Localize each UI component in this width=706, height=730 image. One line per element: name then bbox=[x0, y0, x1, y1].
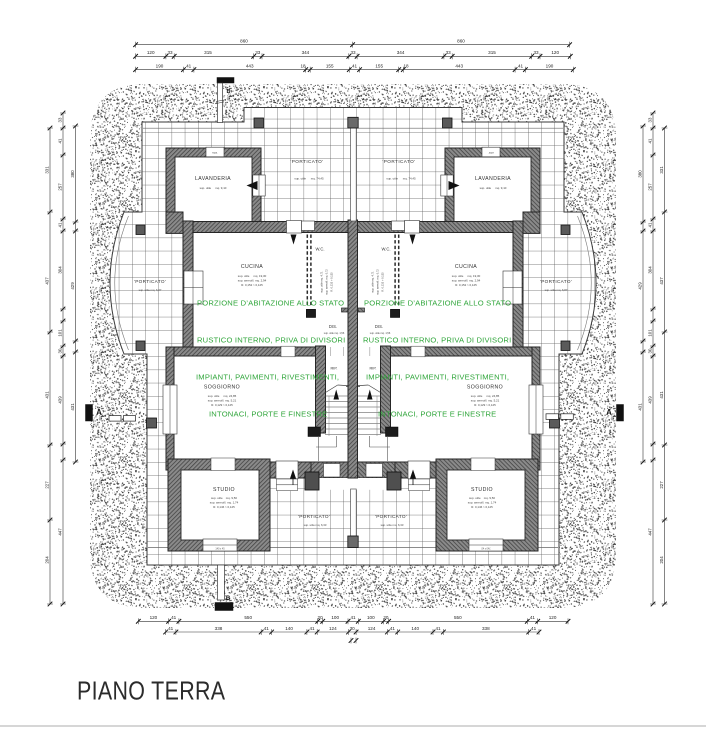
svg-text:sup. aereoill. mq. 0,72: sup. aereoill. mq. 0,72 bbox=[376, 269, 380, 295]
svg-text:41: 41 bbox=[647, 138, 652, 143]
svg-text:41: 41 bbox=[435, 626, 441, 631]
svg-text:R. 0,132 > 0,125: R. 0,132 > 0,125 bbox=[330, 272, 334, 292]
svg-text:204: 204 bbox=[659, 556, 664, 564]
svg-text:33: 33 bbox=[647, 117, 652, 122]
svg-text:190: 190 bbox=[156, 63, 164, 68]
svg-text:IMPIANTI, PAVIMENTI, RIVESTIME: IMPIANTI, PAVIMENTI, RIVESTIMENTI, bbox=[366, 373, 509, 382]
svg-text:SOGGIORNO: SOGGIORNO bbox=[467, 385, 503, 391]
svg-text:sup. utile mq. 19,30: sup. utile mq. 19,30 bbox=[238, 274, 267, 278]
svg-text:41: 41 bbox=[518, 63, 524, 68]
svg-text:‘PORTICATO’: ‘PORTICATO’ bbox=[298, 514, 330, 519]
svg-text:20: 20 bbox=[318, 615, 324, 620]
svg-text:257: 257 bbox=[647, 183, 652, 191]
svg-text:860: 860 bbox=[457, 39, 465, 44]
svg-text:STUDIO: STUDIO bbox=[213, 487, 235, 493]
svg-text:140: 140 bbox=[411, 626, 419, 631]
svg-text:PIANO TERRA: PIANO TERRA bbox=[77, 677, 225, 705]
svg-text:STUDIO: STUDIO bbox=[471, 487, 493, 493]
svg-text:41: 41 bbox=[171, 615, 177, 620]
svg-text:439: 439 bbox=[57, 396, 62, 404]
svg-text:33: 33 bbox=[350, 50, 356, 55]
svg-text:30: 30 bbox=[647, 348, 652, 353]
svg-text:sup. utile mq. 24,85: sup. utile mq. 24,85 bbox=[208, 394, 237, 398]
svg-text:41: 41 bbox=[168, 626, 174, 631]
svg-text:INTONACI, PORTE E FINESTRE: INTONACI, PORTE E FINESTRE bbox=[378, 410, 496, 419]
svg-text:sup. utile mq. 4,71: sup. utile mq. 4,71 bbox=[320, 271, 324, 293]
svg-text:A: A bbox=[606, 408, 612, 417]
svg-text:41: 41 bbox=[390, 626, 396, 631]
svg-text:41: 41 bbox=[647, 222, 652, 227]
svg-text:RIP.: RIP. bbox=[331, 367, 338, 371]
svg-text:41: 41 bbox=[530, 615, 536, 620]
svg-text:sca.: sca. bbox=[212, 151, 218, 155]
svg-text:431: 431 bbox=[637, 403, 642, 411]
svg-text:41: 41 bbox=[309, 626, 315, 631]
svg-text:155: 155 bbox=[326, 63, 334, 68]
svg-text:227: 227 bbox=[659, 481, 664, 489]
svg-text:443: 443 bbox=[246, 63, 254, 68]
svg-text:204: 204 bbox=[44, 556, 49, 564]
svg-text:41: 41 bbox=[57, 138, 62, 143]
svg-text:sup. aereoill. mq. 0,72: sup. aereoill. mq. 0,72 bbox=[325, 269, 329, 295]
svg-text:227: 227 bbox=[44, 481, 49, 489]
svg-text:20: 20 bbox=[383, 615, 389, 620]
svg-text:18: 18 bbox=[403, 63, 409, 68]
svg-text:R. 0,132 > 0,125: R. 0,132 > 0,125 bbox=[381, 272, 385, 292]
svg-text:‘PORTICATO’: ‘PORTICATO’ bbox=[382, 159, 415, 164]
svg-text:A: A bbox=[96, 408, 102, 417]
svg-text:LAVANDERIA: LAVANDERIA bbox=[475, 176, 511, 182]
svg-text:447: 447 bbox=[57, 528, 62, 536]
svg-text:CUCINA: CUCINA bbox=[241, 264, 263, 270]
svg-text:sup. utile mq. 19,30: sup. utile mq. 19,30 bbox=[452, 274, 481, 278]
svg-text:140 x 45: 140 x 45 bbox=[215, 548, 225, 551]
svg-text:‘PORTICATO’: ‘PORTICATO’ bbox=[134, 279, 166, 284]
svg-text:RUSTICO INTERNO, PRIVA DI DIVI: RUSTICO INTERNO, PRIVA DI DIVISORI bbox=[363, 336, 511, 345]
svg-text:sup. utile mq. 74,45: sup. utile mq. 74,45 bbox=[386, 177, 416, 181]
svg-text:155: 155 bbox=[375, 63, 383, 68]
svg-text:550: 550 bbox=[454, 615, 462, 620]
svg-text:120: 120 bbox=[150, 615, 158, 620]
svg-text:R. 0,129 > 0,125: R. 0,129 > 0,125 bbox=[474, 403, 496, 407]
svg-text:18: 18 bbox=[300, 63, 306, 68]
svg-text:431: 431 bbox=[70, 403, 75, 411]
svg-text:41: 41 bbox=[531, 626, 537, 631]
svg-text:sup. aereoill. mq. 1,74: sup. aereoill. mq. 1,74 bbox=[468, 501, 497, 505]
svg-text:120: 120 bbox=[147, 50, 155, 55]
svg-text:LAVANDERIA: LAVANDERIA bbox=[195, 176, 231, 182]
svg-text:338: 338 bbox=[215, 626, 223, 631]
svg-text:431: 431 bbox=[44, 391, 49, 399]
svg-text:W.C.: W.C. bbox=[315, 247, 324, 252]
svg-text:331: 331 bbox=[659, 166, 664, 174]
svg-text:140 x 45: 140 x 45 bbox=[481, 548, 491, 551]
svg-text:100: 100 bbox=[331, 615, 339, 620]
svg-text:B: B bbox=[227, 89, 231, 95]
svg-text:sup. utile mq. 24,85: sup. utile mq. 24,85 bbox=[471, 394, 500, 398]
svg-text:‘PORTICATO’: ‘PORTICATO’ bbox=[375, 514, 407, 519]
svg-text:R. 0,146 > 0,125: R. 0,146 > 0,125 bbox=[213, 505, 235, 509]
svg-text:41: 41 bbox=[186, 63, 192, 68]
svg-text:sup. utile mq. 9,10: sup. utile mq. 9,10 bbox=[200, 186, 227, 190]
svg-text:41: 41 bbox=[350, 615, 356, 620]
svg-text:380: 380 bbox=[70, 170, 75, 178]
svg-text:sup. utile mq. 9,50: sup. utile mq. 9,50 bbox=[469, 496, 495, 500]
svg-text:41: 41 bbox=[352, 63, 358, 68]
svg-text:sup. utile mq. 6,33: sup. utile mq. 6,33 bbox=[381, 523, 404, 527]
svg-text:344: 344 bbox=[302, 50, 310, 55]
svg-text:PORZIONE D’ABITAZIONE ALLO STA: PORZIONE D’ABITAZIONE ALLO STATO bbox=[364, 299, 511, 308]
svg-text:‘PORTICATO’: ‘PORTICATO’ bbox=[290, 159, 323, 164]
svg-text:344: 344 bbox=[397, 50, 405, 55]
svg-text:101: 101 bbox=[647, 329, 652, 337]
svg-text:DIS.: DIS. bbox=[375, 324, 383, 329]
svg-text:R. 0,152 > 0,125: R. 0,152 > 0,125 bbox=[455, 283, 477, 287]
svg-text:sup. aereoill. mq. 2,94: sup. aereoill. mq. 2,94 bbox=[452, 279, 481, 283]
svg-text:550: 550 bbox=[244, 615, 252, 620]
svg-text:190: 190 bbox=[546, 63, 554, 68]
svg-text:R. 0,152 > 0,125: R. 0,152 > 0,125 bbox=[241, 283, 263, 287]
svg-text:RIP.: RIP. bbox=[370, 367, 377, 371]
svg-text:30: 30 bbox=[350, 626, 356, 631]
svg-text:431: 431 bbox=[659, 391, 664, 399]
svg-text:33: 33 bbox=[57, 117, 62, 122]
svg-text:41: 41 bbox=[57, 222, 62, 227]
svg-text:100: 100 bbox=[367, 615, 375, 620]
svg-text:315: 315 bbox=[204, 50, 212, 55]
svg-text:101: 101 bbox=[57, 329, 62, 337]
svg-text:R. 0,146 > 0,125: R. 0,146 > 0,125 bbox=[471, 505, 493, 509]
svg-text:447: 447 bbox=[647, 528, 652, 536]
svg-text:120: 120 bbox=[551, 50, 559, 55]
svg-text:R. 0,129 > 0,125: R. 0,129 > 0,125 bbox=[211, 403, 233, 407]
svg-text:443: 443 bbox=[455, 63, 463, 68]
svg-text:257: 257 bbox=[57, 183, 62, 191]
svg-text:860: 860 bbox=[240, 39, 248, 44]
svg-text:124: 124 bbox=[329, 626, 337, 631]
svg-text:331: 331 bbox=[44, 166, 49, 174]
svg-text:33: 33 bbox=[446, 50, 452, 55]
svg-text:315: 315 bbox=[488, 50, 496, 55]
svg-text:439: 439 bbox=[647, 396, 652, 404]
svg-text:sup. utile mq. 6,87: sup. utile mq. 6,87 bbox=[139, 288, 162, 292]
svg-text:sup. aereoill. mq. 5,21: sup. aereoill. mq. 5,21 bbox=[208, 399, 237, 403]
svg-text:437: 437 bbox=[44, 277, 49, 285]
svg-text:304: 304 bbox=[647, 266, 652, 274]
svg-text:‘PORTICATO’: ‘PORTICATO’ bbox=[540, 279, 572, 284]
svg-text:CUCINA: CUCINA bbox=[455, 264, 477, 270]
svg-text:41: 41 bbox=[264, 626, 270, 631]
svg-text:SOGGIORNO: SOGGIORNO bbox=[204, 385, 240, 391]
svg-text:304: 304 bbox=[57, 266, 62, 274]
svg-text:sca.: sca. bbox=[488, 151, 494, 155]
svg-text:sup. aereoill. mq. 5,21: sup. aereoill. mq. 5,21 bbox=[471, 399, 500, 403]
svg-text:33: 33 bbox=[533, 50, 539, 55]
svg-text:sup. aereoill. mq. 1,74: sup. aereoill. mq. 1,74 bbox=[210, 501, 239, 505]
svg-text:124: 124 bbox=[368, 626, 376, 631]
svg-text:sup. utile mq. 4,71: sup. utile mq. 4,71 bbox=[371, 271, 375, 293]
svg-text:sup. aereoill. mq. 2,94: sup. aereoill. mq. 2,94 bbox=[238, 279, 267, 283]
svg-text:DIS.: DIS. bbox=[329, 324, 337, 329]
svg-text:33: 33 bbox=[167, 50, 173, 55]
svg-text:IMPIANTI, PAVIMENTI, RIVESTIME: IMPIANTI, PAVIMENTI, RIVESTIMENTI, bbox=[196, 373, 339, 382]
svg-text:380: 380 bbox=[637, 170, 642, 178]
svg-text:437: 437 bbox=[659, 277, 664, 285]
svg-text:30: 30 bbox=[57, 348, 62, 353]
svg-text:B: B bbox=[226, 596, 231, 602]
svg-text:RUSTICO INTERNO, PRIVA DI DIVI: RUSTICO INTERNO, PRIVA DI DIVISORI bbox=[197, 336, 345, 345]
svg-text:W.C.: W.C. bbox=[381, 247, 390, 252]
svg-text:429: 429 bbox=[637, 282, 642, 290]
svg-text:120: 120 bbox=[549, 615, 557, 620]
svg-text:429: 429 bbox=[70, 282, 75, 290]
svg-text:33: 33 bbox=[255, 50, 261, 55]
svg-text:INTONACI, PORTE E FINESTRE: INTONACI, PORTE E FINESTRE bbox=[209, 410, 327, 419]
svg-text:sup. utile mq. 6,33: sup. utile mq. 6,33 bbox=[304, 523, 327, 527]
svg-text:sup. utile mq. 6,87: sup. utile mq. 6,87 bbox=[545, 288, 568, 292]
svg-text:338: 338 bbox=[482, 626, 490, 631]
svg-text:PORZIONE D’ABITAZIONE ALLO STA: PORZIONE D’ABITAZIONE ALLO STATO bbox=[197, 299, 344, 308]
svg-text:sup. utile mq. 9,10: sup. utile mq. 9,10 bbox=[480, 186, 507, 190]
svg-text:sup. utile mq. 9,50: sup. utile mq. 9,50 bbox=[211, 496, 237, 500]
svg-text:sup. utile mq. 74,45: sup. utile mq. 74,45 bbox=[294, 177, 324, 181]
svg-text:140: 140 bbox=[285, 626, 293, 631]
